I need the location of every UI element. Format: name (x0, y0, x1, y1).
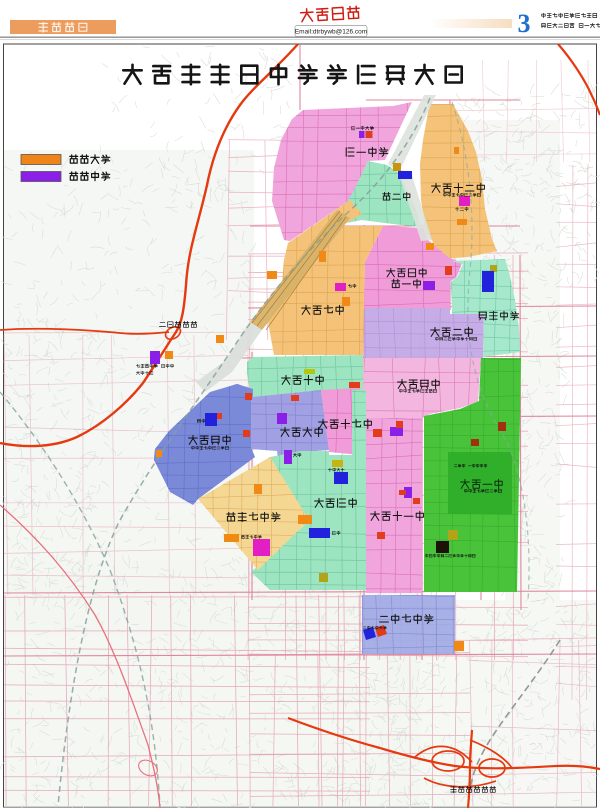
svg-text:3: 3 (518, 9, 531, 38)
svg-text:Email:dtrbywb@126.com: Email:dtrbywb@126.com (295, 29, 367, 36)
